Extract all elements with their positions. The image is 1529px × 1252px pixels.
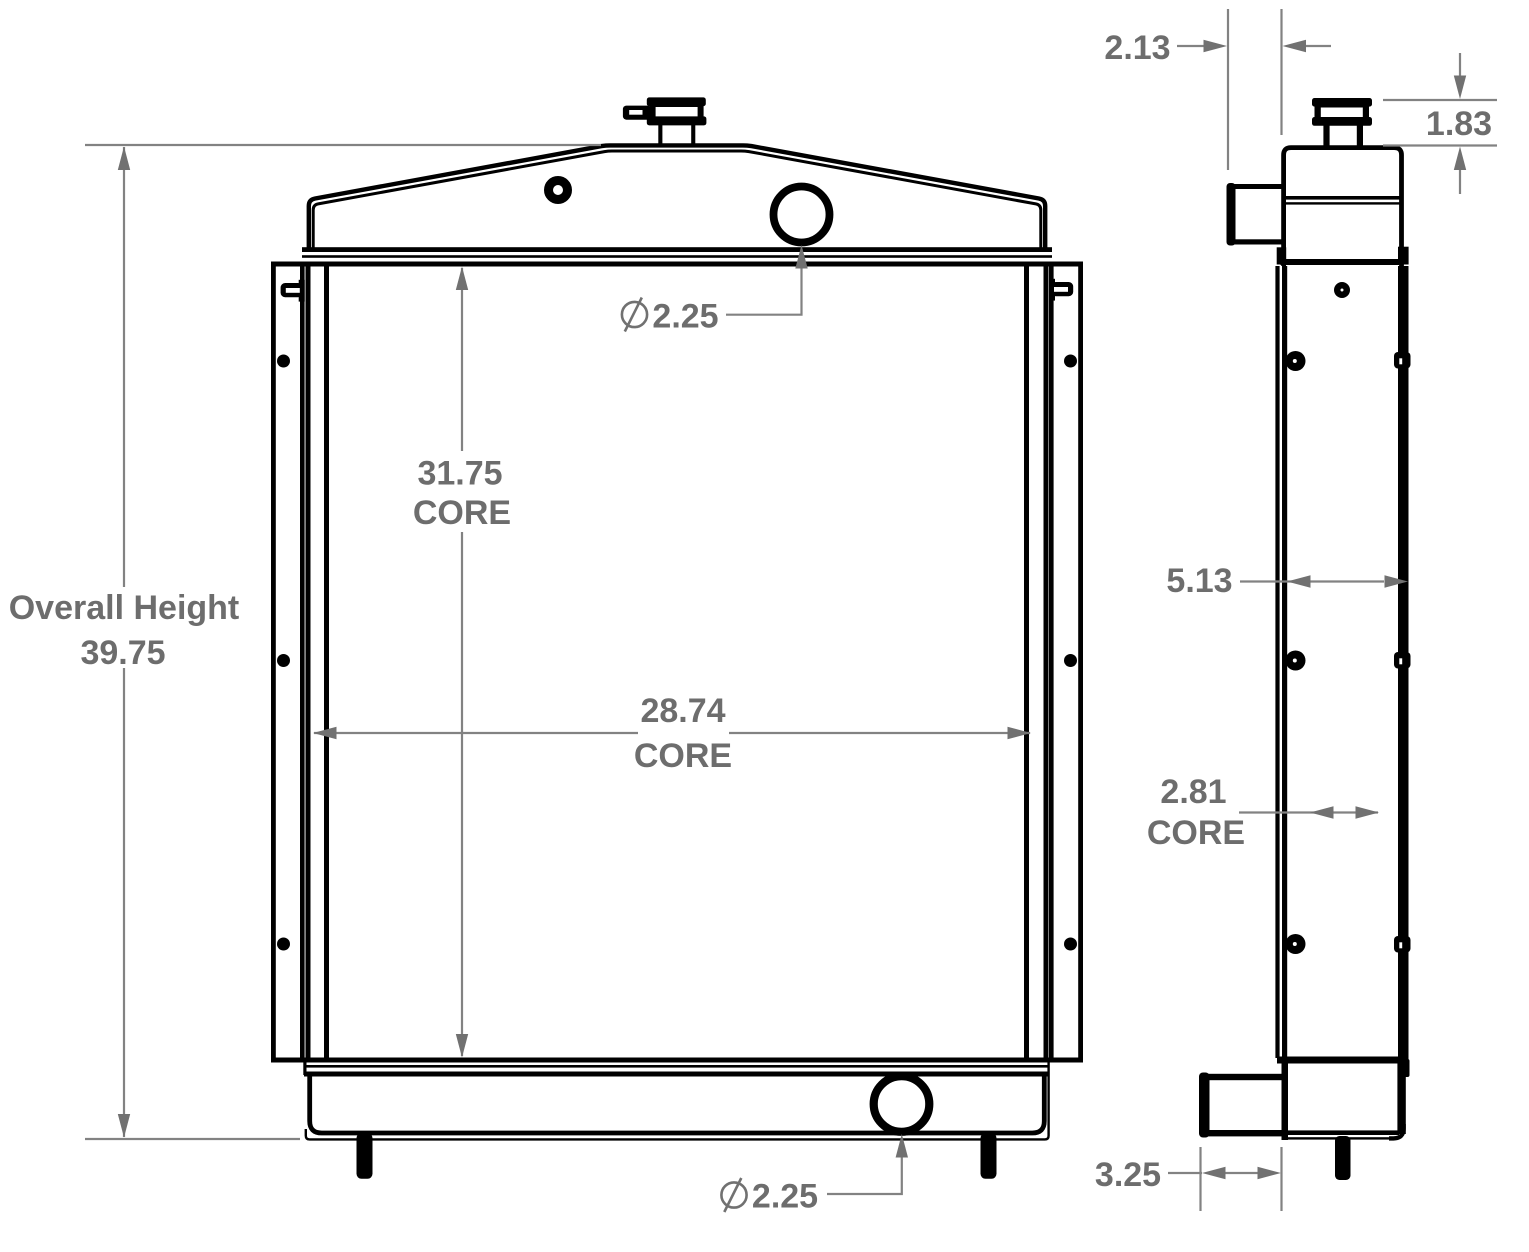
svg-text:2.25: 2.25 xyxy=(652,298,718,336)
svg-text:Overall Height: Overall Height xyxy=(9,589,240,627)
svg-text:39.75: 39.75 xyxy=(80,634,165,672)
svg-text:31.75: 31.75 xyxy=(417,455,502,493)
svg-text:CORE: CORE xyxy=(413,494,511,532)
svg-text:5.13: 5.13 xyxy=(1166,562,1232,600)
svg-text:3.25: 3.25 xyxy=(1095,1156,1161,1194)
svg-text:CORE: CORE xyxy=(1147,814,1245,852)
svg-text:2.25: 2.25 xyxy=(752,1178,818,1216)
svg-text:1.83: 1.83 xyxy=(1426,105,1492,143)
svg-text:2.13: 2.13 xyxy=(1104,29,1170,67)
svg-text:2.81: 2.81 xyxy=(1160,773,1226,811)
svg-text:CORE: CORE xyxy=(634,737,732,775)
svg-text:28.74: 28.74 xyxy=(640,692,725,730)
